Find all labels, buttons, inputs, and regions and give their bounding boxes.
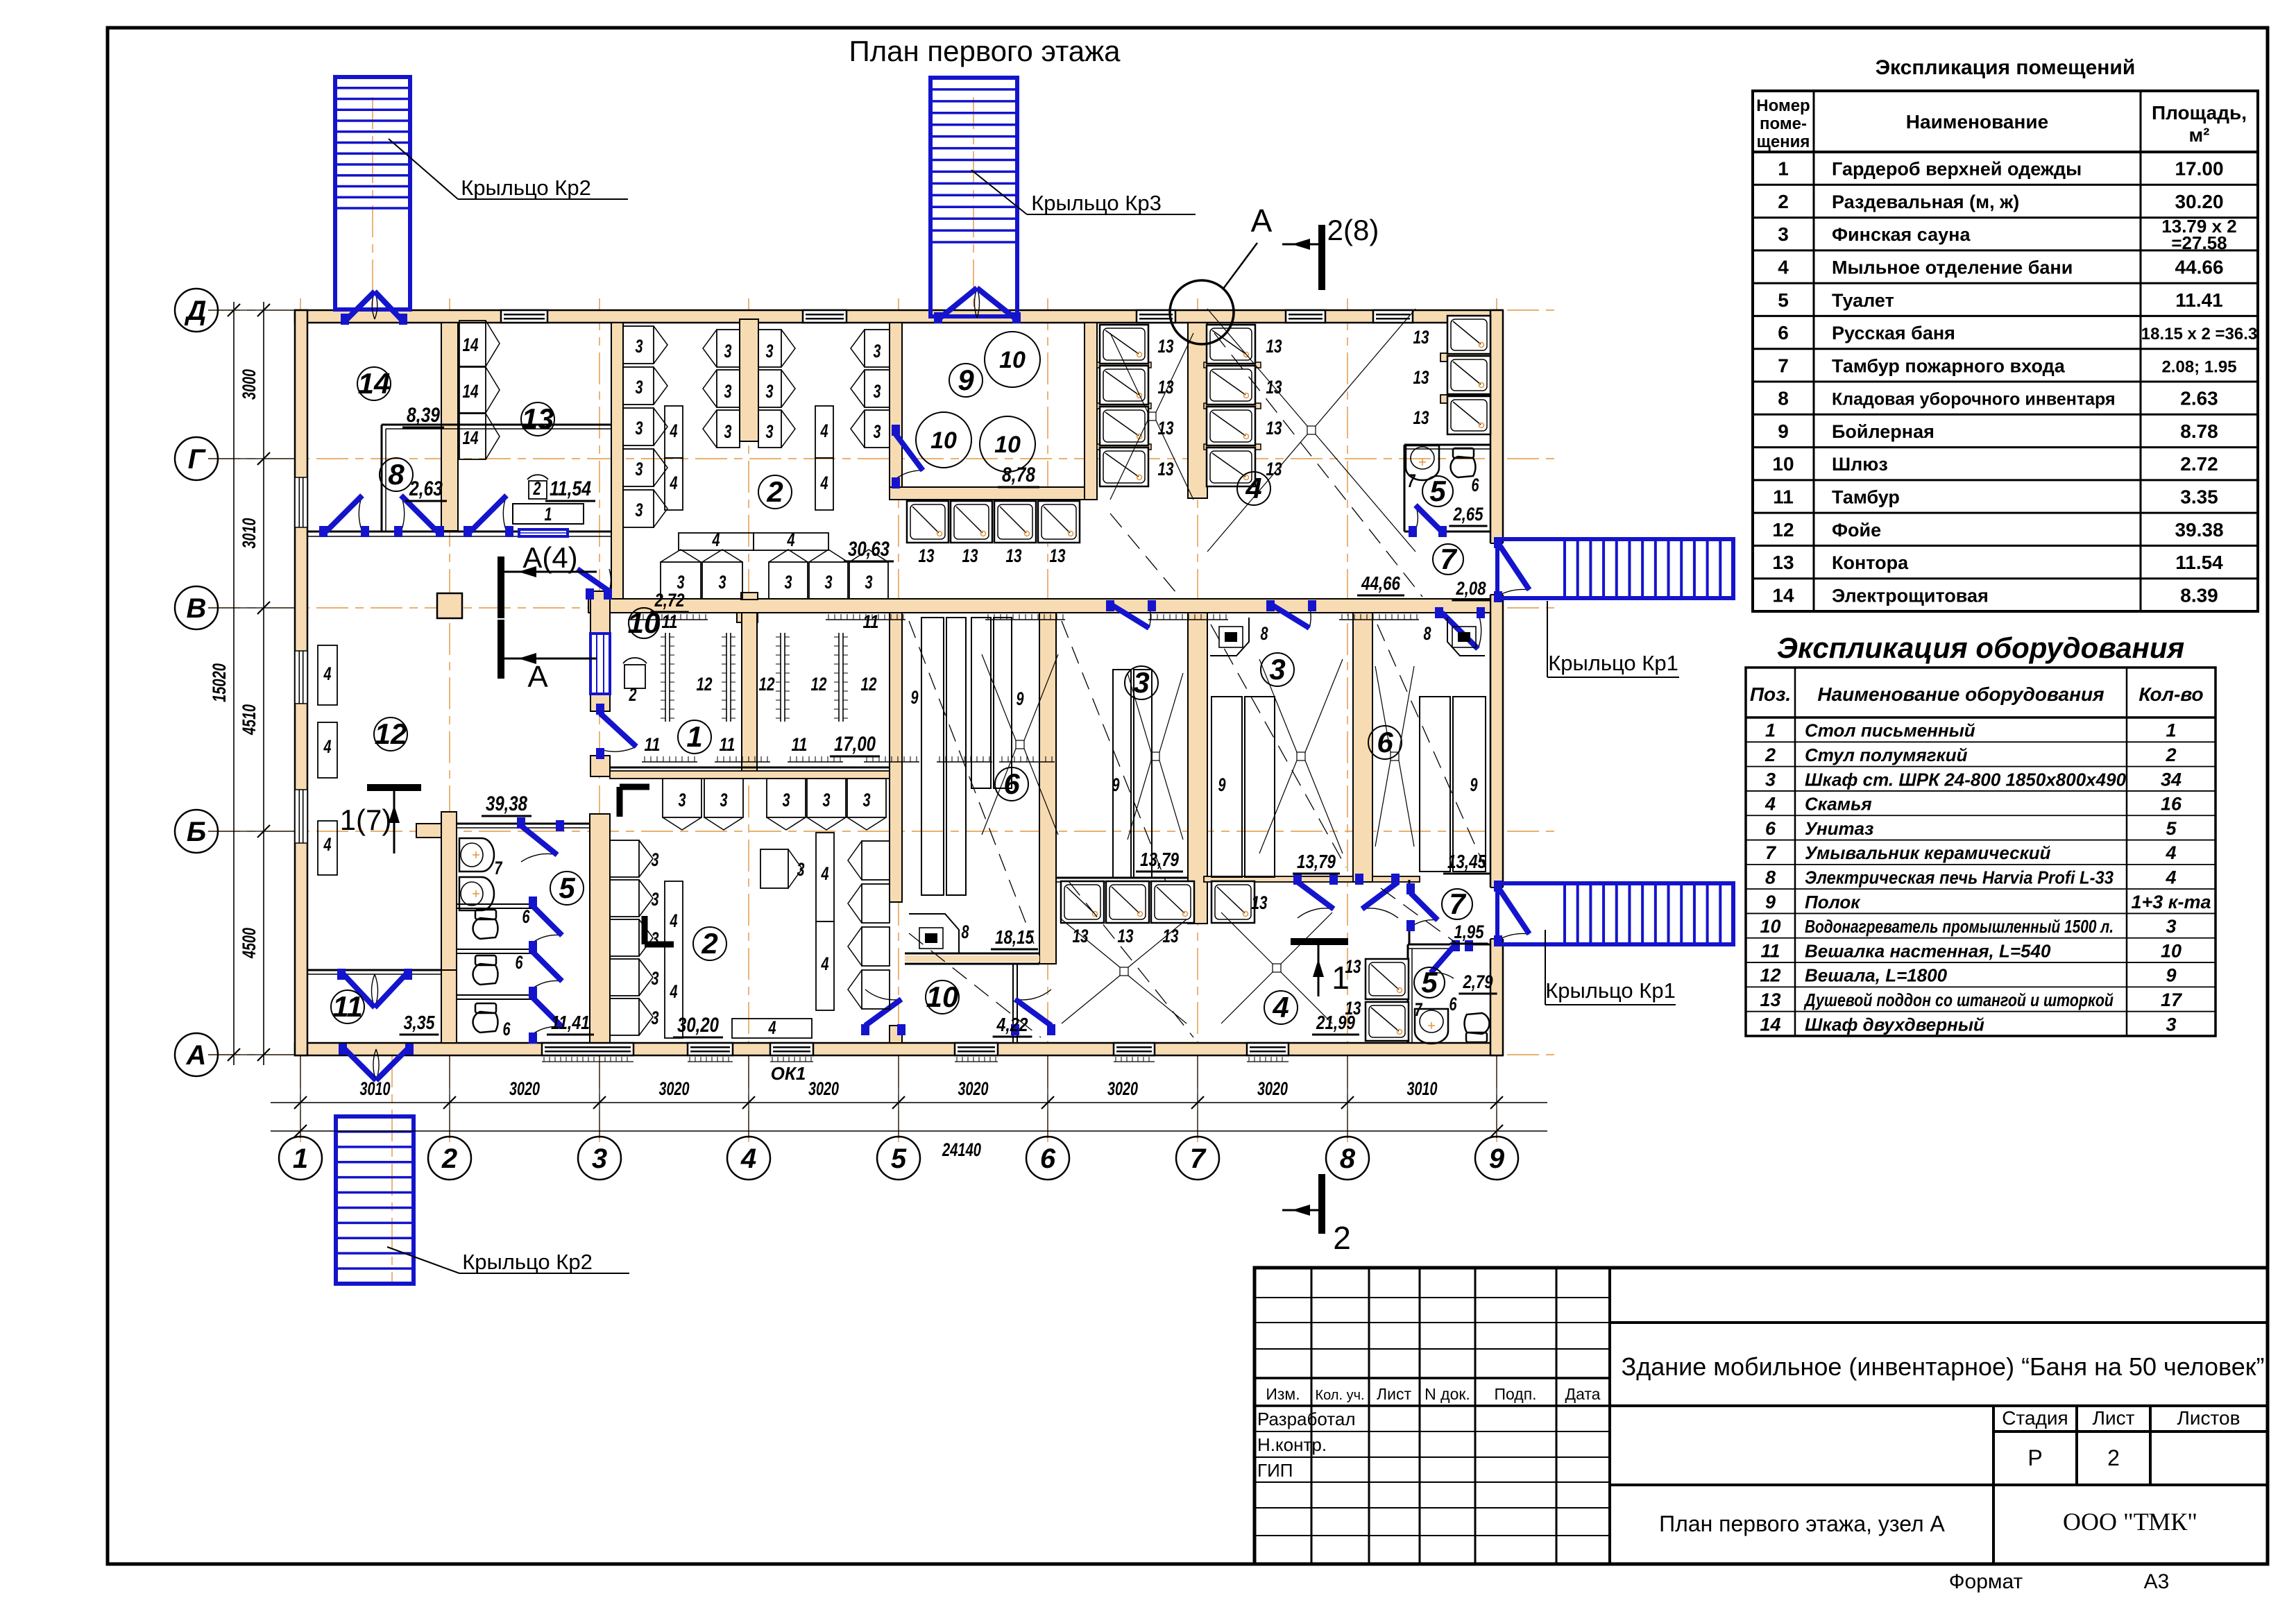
svg-text:14: 14 [463,427,479,448]
svg-text:3: 3 [766,421,774,442]
svg-text:2,79: 2,79 [1463,971,1493,992]
svg-text:ОК1: ОК1 [771,1063,806,1084]
svg-text:4: 4 [670,910,678,931]
svg-text:10: 10 [2161,940,2182,961]
svg-text:Шкаф ст. ШРК 24-800 1850х800х4: Шкаф ст. ШРК 24-800 1850х800х490 [1805,769,2127,790]
svg-text:5: 5 [2166,818,2177,839]
svg-text:Кол. уч.: Кол. уч. [1315,1388,1364,1403]
svg-text:3: 3 [720,790,728,810]
svg-text:13: 13 [1772,552,1794,573]
svg-text:4: 4 [670,981,678,1002]
svg-text:2.63: 2.63 [2180,388,2218,409]
svg-text:9: 9 [1778,420,1789,442]
svg-text:13: 13 [1413,367,1429,388]
svg-text:4: 4 [820,420,828,441]
svg-text:5: 5 [891,1144,907,1174]
svg-text:5: 5 [1778,289,1789,311]
svg-text:9: 9 [1112,774,1120,795]
svg-text:44.66: 44.66 [2175,257,2223,278]
svg-text:4: 4 [1245,472,1261,504]
svg-text:4: 4 [670,420,678,441]
svg-text:3: 3 [724,341,732,362]
svg-text:14: 14 [358,367,391,400]
svg-text:11: 11 [1760,940,1780,961]
svg-text:3010: 3010 [360,1078,391,1099]
svg-text:9: 9 [1470,774,1478,795]
svg-text:11: 11 [720,734,735,755]
svg-text:1: 1 [1778,158,1789,180]
svg-text:Экспликация оборудования: Экспликация оборудования [1777,631,2184,664]
svg-text:2: 2 [1764,745,1776,765]
svg-text:Изм.: Изм. [1266,1385,1300,1403]
svg-text:1,95: 1,95 [1454,921,1485,942]
svg-text:3.35: 3.35 [2180,486,2218,508]
svg-text:3010: 3010 [1407,1078,1438,1099]
svg-text:3: 3 [1778,223,1789,245]
svg-text:1: 1 [1765,720,1776,741]
svg-text:13: 13 [1006,545,1022,566]
svg-text:8.78: 8.78 [2180,420,2218,442]
svg-text:Электрическая печь Harvia Prof: Электрическая печь Harvia Profi L-33 [1805,867,2114,888]
svg-text:5: 5 [559,872,575,904]
svg-text:Г: Г [188,444,207,475]
svg-text:3: 3 [652,849,659,870]
svg-text:4: 4 [821,953,829,974]
svg-text:13: 13 [1158,418,1174,439]
svg-text:13: 13 [919,545,935,566]
svg-text:10: 10 [994,432,1021,458]
svg-text:13: 13 [1252,892,1268,913]
svg-text:39.38: 39.38 [2175,519,2223,541]
svg-text:3: 3 [863,790,871,810]
svg-text:13: 13 [1760,989,1780,1010]
svg-text:Электрощитовая: Электрощитовая [1832,585,1989,606]
svg-text:9: 9 [1489,1144,1505,1174]
svg-text:30.20: 30.20 [2175,191,2223,212]
svg-text:3: 3 [592,1144,607,1174]
svg-text:Формат: Формат [1949,1570,2023,1593]
svg-text:17,00: 17,00 [834,733,876,756]
svg-text:6: 6 [1449,994,1458,1014]
svg-text:5: 5 [1421,966,1438,999]
svg-text:3020: 3020 [808,1078,839,1099]
svg-text:14: 14 [463,381,479,402]
svg-text:6: 6 [1778,322,1789,343]
svg-text:11,54: 11,54 [550,477,591,500]
svg-text:поме-: поме- [1760,114,1807,133]
svg-text:11: 11 [645,734,661,755]
svg-text:2: 2 [533,478,541,499]
svg-text:А(4): А(4) [522,541,577,574]
svg-text:10: 10 [1760,916,1780,937]
svg-text:Лист: Лист [2093,1407,2135,1429]
svg-text:2,63: 2,63 [409,477,443,500]
svg-text:13: 13 [1118,926,1134,946]
svg-text:2: 2 [629,684,637,705]
svg-text:Стол письменный: Стол письменный [1805,720,1975,741]
svg-text:ГИП: ГИП [1257,1460,1293,1481]
svg-text:2: 2 [441,1144,457,1174]
svg-text:Р: Р [2027,1445,2042,1470]
svg-text:3: 3 [874,421,881,442]
svg-text:39,38: 39,38 [486,792,527,815]
svg-text:3: 3 [636,500,643,520]
svg-text:11: 11 [1773,486,1794,508]
svg-text:Унитаз: Унитаз [1805,818,1873,839]
svg-text:2: 2 [1333,1220,1351,1256]
svg-text:4: 4 [1778,257,1789,278]
svg-text:3: 3 [719,572,726,593]
svg-text:Наименование оборудования: Наименование оборудования [1817,683,2104,705]
svg-text:3: 3 [2166,1014,2176,1035]
svg-text:1: 1 [2166,720,2176,741]
svg-text:7: 7 [1415,999,1423,1020]
svg-text:12: 12 [375,717,407,750]
svg-text:Н.контр.: Н.контр. [1257,1434,1327,1455]
svg-text:11,41: 11,41 [551,1012,590,1033]
svg-text:2,72: 2,72 [654,590,685,611]
svg-text:12: 12 [1760,965,1780,986]
svg-text:=27.58: =27.58 [2171,232,2227,253]
svg-text:7: 7 [1408,470,1416,491]
svg-text:Разработал: Разработал [1257,1409,1356,1429]
svg-text:15020: 15020 [209,663,230,702]
svg-text:Гардероб верхней одежды: Гардероб верхней одежды [1832,159,2082,180]
svg-text:7: 7 [1778,355,1789,376]
svg-text:10: 10 [1772,453,1794,475]
svg-text:Кладовая уборочного инвентаря: Кладовая уборочного инвентаря [1832,390,2116,409]
svg-text:Мыльное отделение бани: Мыльное отделение бани [1832,257,2073,278]
svg-text:12: 12 [1772,519,1794,541]
svg-text:Стул полумягкий: Стул полумягкий [1805,745,1968,765]
svg-text:3: 3 [652,1008,659,1028]
svg-text:А: А [1251,203,1273,239]
svg-text:8: 8 [962,921,969,942]
svg-text:Лист: Лист [1377,1385,1411,1403]
svg-text:Вешалка настенная, L=540: Вешалка настенная, L=540 [1805,940,2051,961]
svg-text:12: 12 [759,674,775,695]
svg-text:7: 7 [1440,543,1457,575]
svg-text:8,39: 8,39 [407,404,440,427]
svg-text:18,15: 18,15 [995,926,1034,948]
svg-text:2,08: 2,08 [1456,578,1486,599]
svg-text:24140: 24140 [942,1139,981,1160]
svg-text:11: 11 [332,990,363,1023]
svg-text:13: 13 [1073,926,1089,946]
svg-text:Листов: Листов [2177,1407,2240,1429]
svg-text:3: 3 [766,341,774,362]
svg-text:10: 10 [930,427,957,454]
svg-text:3: 3 [783,790,790,810]
svg-text:30,20: 30,20 [677,1014,719,1037]
svg-text:Бойлерная: Бойлерная [1832,421,1934,442]
svg-text:4: 4 [1272,991,1289,1023]
svg-text:Крыльцо Кр1: Крыльцо Кр1 [1548,651,1678,675]
svg-text:В: В [187,593,207,624]
svg-text:4510: 4510 [239,704,260,736]
svg-text:Дата: Дата [1565,1385,1601,1403]
svg-text:11.54: 11.54 [2175,552,2223,573]
svg-text:3,35: 3,35 [404,1012,435,1033]
svg-text:7: 7 [495,858,503,878]
svg-text:4: 4 [2165,842,2176,863]
svg-text:Финская сауна: Финская сауна [1832,224,1971,245]
svg-text:Здание мобильное (инвентарное): Здание мобильное (инвентарное) “Баня на … [1621,1352,2264,1381]
svg-text:5: 5 [1429,475,1446,507]
svg-text:2: 2 [766,475,783,508]
svg-text:13: 13 [1050,545,1066,566]
svg-text:Скамья: Скамья [1805,794,1872,815]
svg-text:6: 6 [516,952,524,973]
svg-text:3: 3 [823,790,831,810]
svg-text:3: 3 [652,889,659,910]
svg-text:8: 8 [1765,867,1776,888]
svg-text:4: 4 [1764,794,1776,815]
svg-text:3: 3 [636,336,643,357]
svg-text:13: 13 [1266,418,1282,439]
svg-text:Экспликация помещений: Экспликация помещений [1876,56,2136,79]
svg-text:Шкаф двухдверный: Шкаф двухдверный [1805,1014,1984,1035]
svg-text:12: 12 [861,674,877,695]
svg-text:А3: А3 [2144,1570,2170,1593]
svg-text:3020: 3020 [1257,1078,1288,1099]
svg-text:3: 3 [636,377,643,398]
svg-text:8: 8 [1340,1144,1356,1174]
svg-text:А: А [527,660,548,694]
svg-text:Тамбур пожарного входа: Тамбур пожарного входа [1832,355,2066,376]
svg-text:9: 9 [2166,965,2176,986]
svg-text:12: 12 [697,674,713,695]
svg-text:1: 1 [1332,960,1350,996]
svg-text:3020: 3020 [509,1078,540,1099]
svg-text:щения: щения [1757,133,1810,151]
svg-text:14: 14 [463,334,479,355]
svg-text:Шлюз: Шлюз [1832,454,1888,475]
svg-text:13: 13 [1163,926,1179,946]
svg-text:1: 1 [545,504,552,525]
svg-text:2: 2 [1778,191,1789,212]
svg-text:Раздевальная (м, ж): Раздевальная (м, ж) [1832,192,2019,212]
svg-text:4: 4 [323,663,332,684]
svg-text:14: 14 [1760,1014,1780,1035]
svg-text:16: 16 [2161,794,2182,815]
svg-text:3: 3 [1765,769,1776,790]
svg-text:3020: 3020 [958,1078,989,1099]
svg-text:11: 11 [863,611,879,632]
svg-text:3: 3 [724,381,732,402]
svg-text:1(7): 1(7) [340,804,392,836]
svg-text:2.08; 1.95: 2.08; 1.95 [2161,357,2236,376]
svg-text:13: 13 [1266,459,1282,479]
svg-text:17.00: 17.00 [2175,158,2223,180]
svg-text:Фойе: Фойе [1832,520,1881,541]
svg-text:Крыльцо Кр2: Крыльцо Кр2 [462,1250,593,1274]
svg-text:10: 10 [926,980,959,1013]
svg-text:3: 3 [874,341,881,362]
svg-text:Б: Б [187,817,206,847]
svg-text:3: 3 [865,572,873,593]
svg-text:3: 3 [1269,653,1285,686]
svg-text:3: 3 [797,859,805,880]
svg-text:2.72: 2.72 [2180,453,2218,475]
svg-text:6: 6 [1765,818,1776,839]
svg-text:Площадь,: Площадь, [2152,102,2247,124]
svg-text:8.39: 8.39 [2180,584,2218,606]
svg-text:7: 7 [1765,842,1777,863]
svg-text:13: 13 [1413,407,1429,428]
svg-text:3: 3 [636,459,643,479]
svg-text:34: 34 [2161,769,2182,790]
svg-text:Контора: Контора [1832,552,1909,573]
svg-text:1+3 к-та: 1+3 к-та [2131,892,2211,912]
svg-text:6: 6 [503,1019,511,1039]
svg-text:8: 8 [1261,623,1268,644]
svg-text:18.15 х 2 =36.3: 18.15 х 2 =36.3 [2141,325,2257,343]
svg-text:3: 3 [652,968,659,989]
svg-text:4: 4 [323,736,332,757]
svg-text:А: А [186,1040,207,1071]
svg-text:Крыльцо Кр1: Крыльцо Кр1 [1545,978,1676,1003]
svg-text:3: 3 [1133,666,1149,699]
svg-text:Тамбур: Тамбур [1832,487,1900,508]
svg-text:N док.: N док. [1425,1385,1470,1403]
svg-text:13: 13 [522,402,554,435]
svg-text:9: 9 [1017,688,1024,709]
svg-text:8: 8 [1778,388,1789,409]
svg-text:Подп.: Подп. [1494,1385,1536,1403]
svg-text:21,99: 21,99 [1316,1012,1355,1033]
svg-text:7: 7 [1449,887,1466,920]
svg-text:3: 3 [874,381,881,402]
svg-text:13: 13 [1266,336,1282,357]
svg-text:3: 3 [679,790,686,810]
svg-text:Туалет: Туалет [1832,290,1894,311]
svg-text:Полок: Полок [1805,892,1861,912]
svg-text:8: 8 [1424,623,1431,644]
svg-text:Крыльцо Кр2: Крыльцо Кр2 [461,176,591,200]
svg-text:7: 7 [1190,1144,1207,1174]
svg-text:3020: 3020 [659,1078,690,1099]
svg-text:Водонагреватель промышленный 1: Водонагреватель промышленный 1500 л. [1805,916,2114,937]
svg-text:Крыльцо Кр3: Крыльцо Кр3 [1031,191,1162,215]
svg-text:Русская баня: Русская баня [1832,323,1955,343]
svg-text:6: 6 [1040,1144,1056,1174]
svg-text:8: 8 [388,458,405,491]
svg-text:2: 2 [701,927,717,960]
svg-text:6: 6 [1472,475,1480,495]
svg-text:Наименование: Наименование [1906,111,2048,133]
svg-text:Душевой поддон со штангой и шт: Душевой поддон со штангой и шторкой [1803,989,2114,1010]
svg-text:3: 3 [766,381,774,402]
svg-text:4: 4 [768,1017,776,1038]
svg-text:м²: м² [2188,124,2209,146]
svg-text:4,22: 4,22 [996,1014,1028,1035]
svg-text:Кол-во: Кол-во [2138,683,2203,705]
svg-text:10: 10 [999,347,1026,373]
svg-text:11: 11 [662,611,678,632]
svg-text:4: 4 [670,473,678,493]
svg-text:12: 12 [811,674,827,695]
svg-text:9: 9 [1765,892,1776,912]
svg-text:Вешала, L=1800: Вешала, L=1800 [1805,965,1948,986]
svg-text:13,79: 13,79 [1297,851,1336,872]
svg-text:Поз.: Поз. [1750,683,1791,705]
svg-text:Номер: Номер [1756,96,1810,115]
svg-text:4: 4 [820,473,828,493]
svg-text:17: 17 [2161,989,2183,1010]
svg-text:11.41: 11.41 [2175,289,2223,311]
svg-text:1: 1 [293,1144,308,1174]
svg-text:4: 4 [821,863,829,884]
svg-text:9: 9 [958,364,974,396]
svg-text:3010: 3010 [239,518,260,549]
svg-text:Умывальник керамический: Умывальник керамический [1805,842,2051,863]
svg-text:Д: Д [185,296,207,326]
svg-text:План первого этажа, узел А: План первого этажа, узел А [1659,1511,1945,1536]
svg-text:44,66: 44,66 [1361,572,1400,594]
svg-text:13: 13 [1413,327,1429,348]
svg-text:3: 3 [724,421,732,442]
svg-text:4: 4 [323,834,332,855]
svg-text:11: 11 [792,734,808,755]
svg-text:9: 9 [1218,774,1226,795]
svg-text:8,78: 8,78 [1002,464,1035,486]
svg-text:Стадия: Стадия [2002,1407,2068,1429]
svg-text:4500: 4500 [239,928,260,959]
svg-text:2: 2 [2107,1445,2120,1470]
svg-text:6: 6 [1377,726,1393,758]
svg-text:13: 13 [1158,459,1174,479]
svg-text:3020: 3020 [1107,1078,1138,1099]
svg-text:13: 13 [1158,336,1174,357]
svg-text:13,45: 13,45 [1447,851,1486,872]
svg-text:3: 3 [785,572,792,593]
svg-text:3: 3 [636,418,643,439]
svg-text:6: 6 [1003,767,1020,800]
svg-text:14: 14 [1772,584,1794,606]
svg-text:План первого этажа: План первого этажа [849,35,1121,67]
svg-text:4: 4 [2165,867,2176,888]
svg-text:ООО "ТМК": ООО "ТМК" [2063,1508,2197,1536]
svg-text:4: 4 [787,529,795,550]
svg-text:2(8): 2(8) [1327,214,1379,246]
svg-text:1: 1 [686,720,702,753]
svg-text:6: 6 [522,906,531,927]
svg-text:9: 9 [911,687,919,708]
svg-text:2: 2 [2165,745,2176,765]
svg-text:4: 4 [712,529,720,550]
svg-text:13: 13 [962,545,978,566]
svg-text:3: 3 [825,572,833,593]
svg-text:4: 4 [740,1144,756,1174]
svg-text:3: 3 [2166,916,2176,937]
svg-text:3000: 3000 [239,369,260,400]
svg-text:2,65: 2,65 [1453,504,1484,525]
